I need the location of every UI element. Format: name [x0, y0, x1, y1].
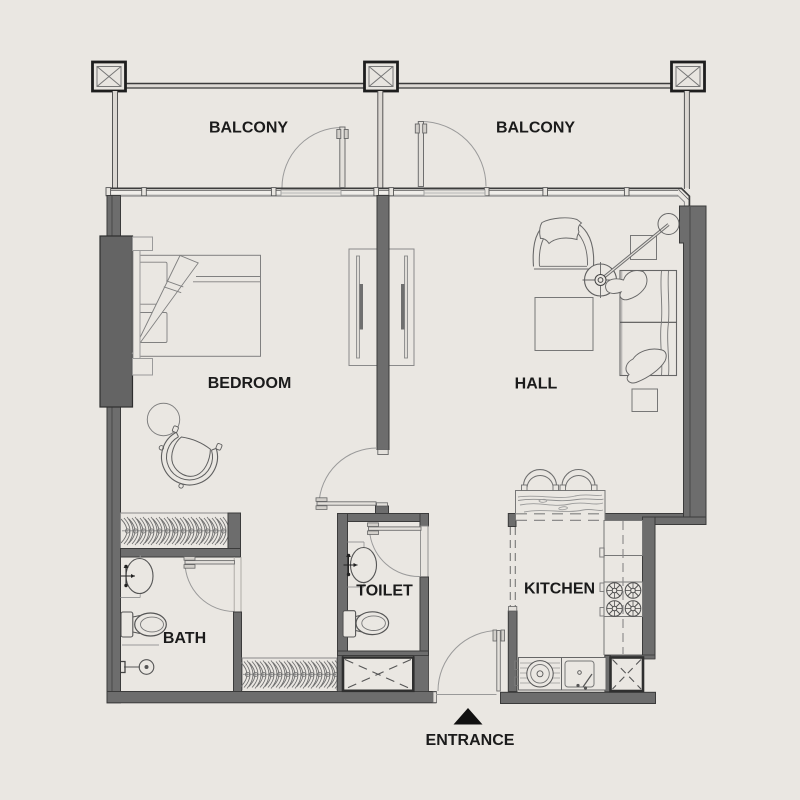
svg-text:KITCHEN: KITCHEN — [524, 581, 595, 598]
svg-text:TOILET: TOILET — [356, 583, 413, 600]
svg-text:HALL: HALL — [515, 376, 558, 393]
svg-text:BEDROOM: BEDROOM — [208, 375, 292, 392]
svg-text:BALCONY: BALCONY — [209, 120, 288, 137]
svg-text:BATH: BATH — [163, 630, 206, 647]
svg-text:BALCONY: BALCONY — [496, 120, 575, 137]
svg-text:ENTRANCE: ENTRANCE — [426, 732, 515, 749]
